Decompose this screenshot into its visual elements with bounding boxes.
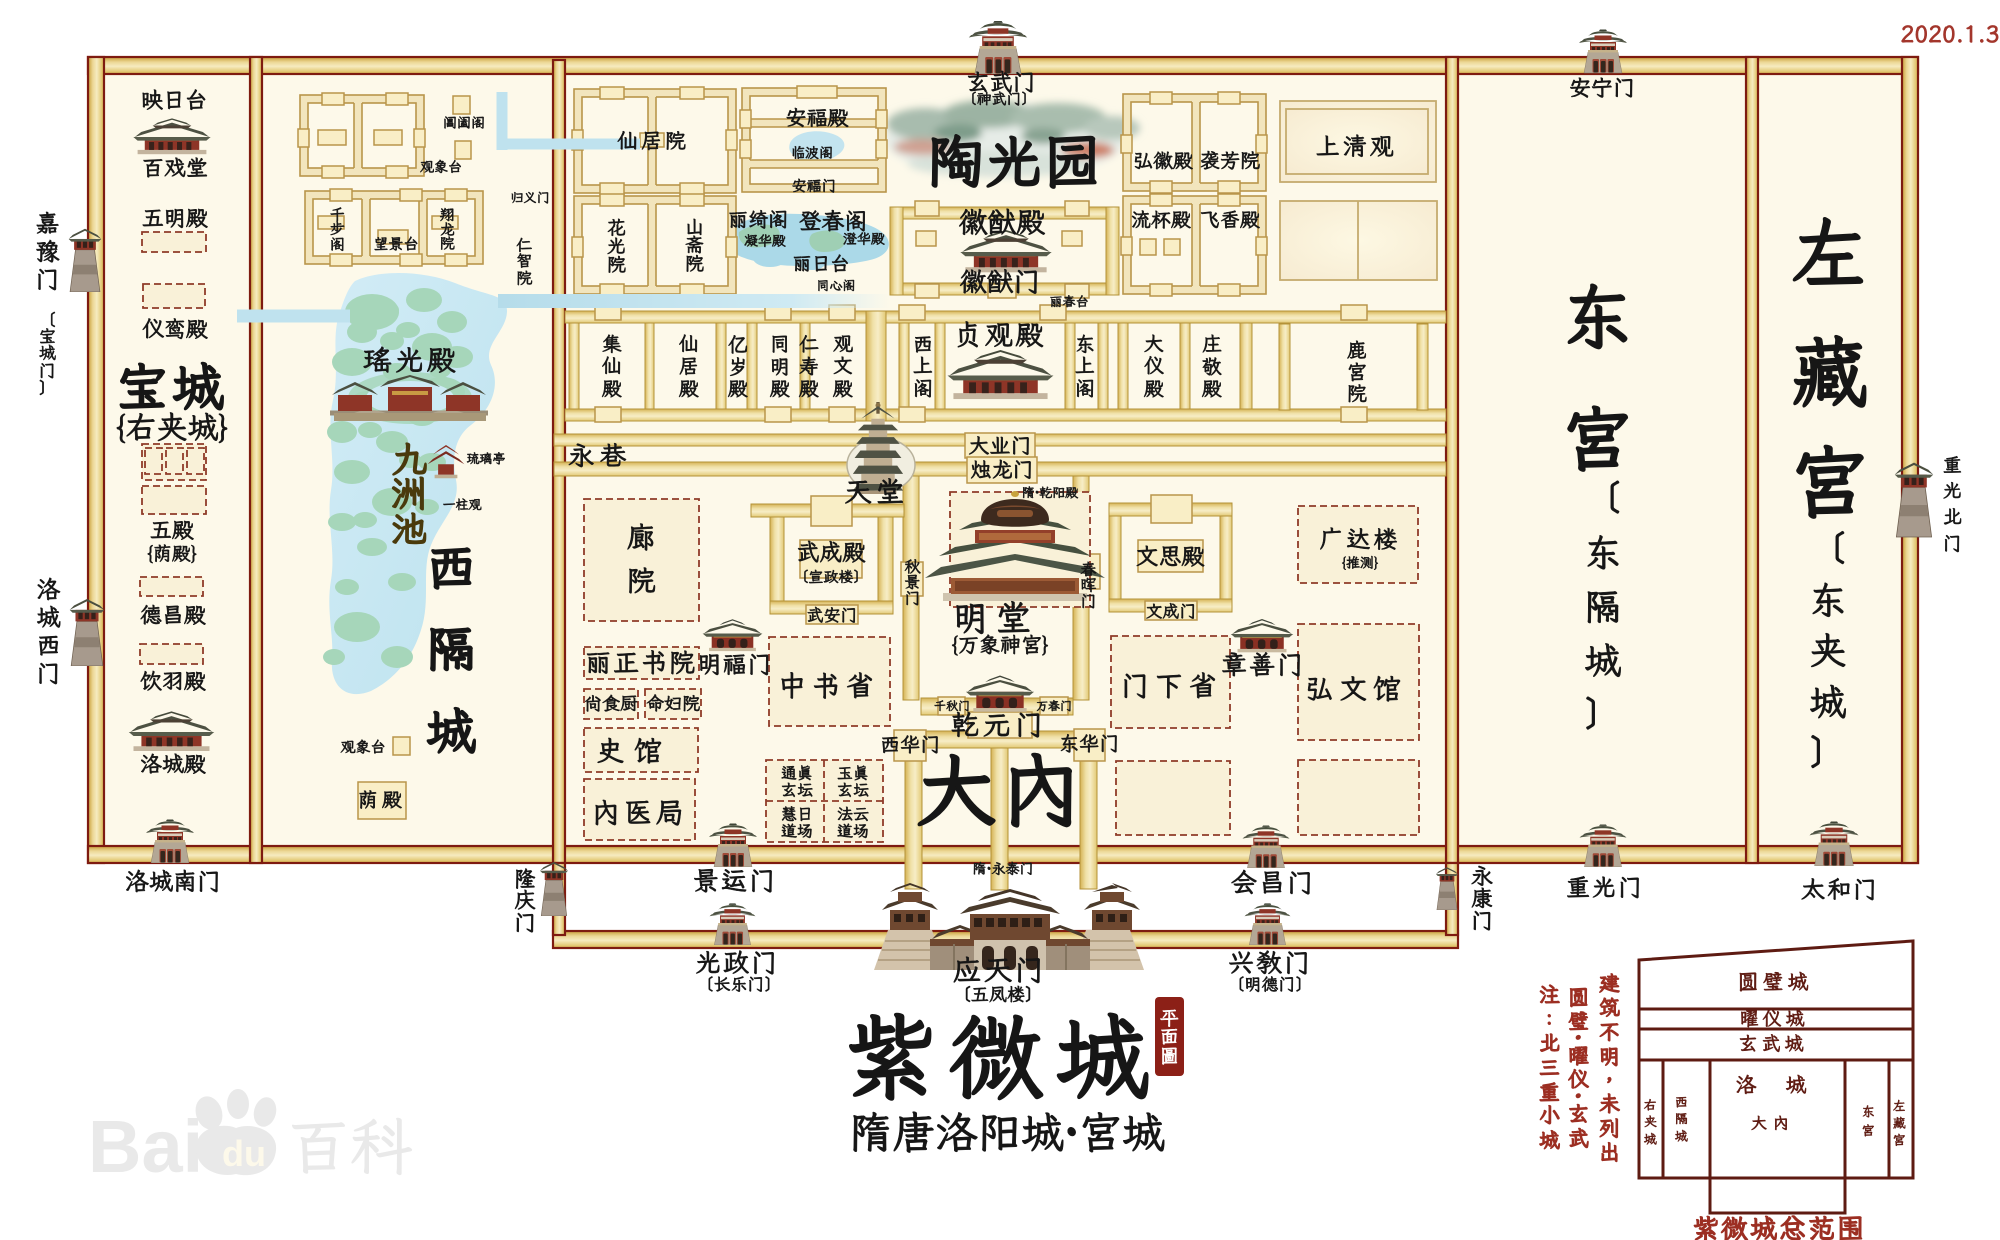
svg-text:Bai: Bai	[88, 1105, 203, 1188]
svg-text:du: du	[222, 1133, 266, 1174]
svg-text:百科: 百科	[288, 1104, 413, 1186]
